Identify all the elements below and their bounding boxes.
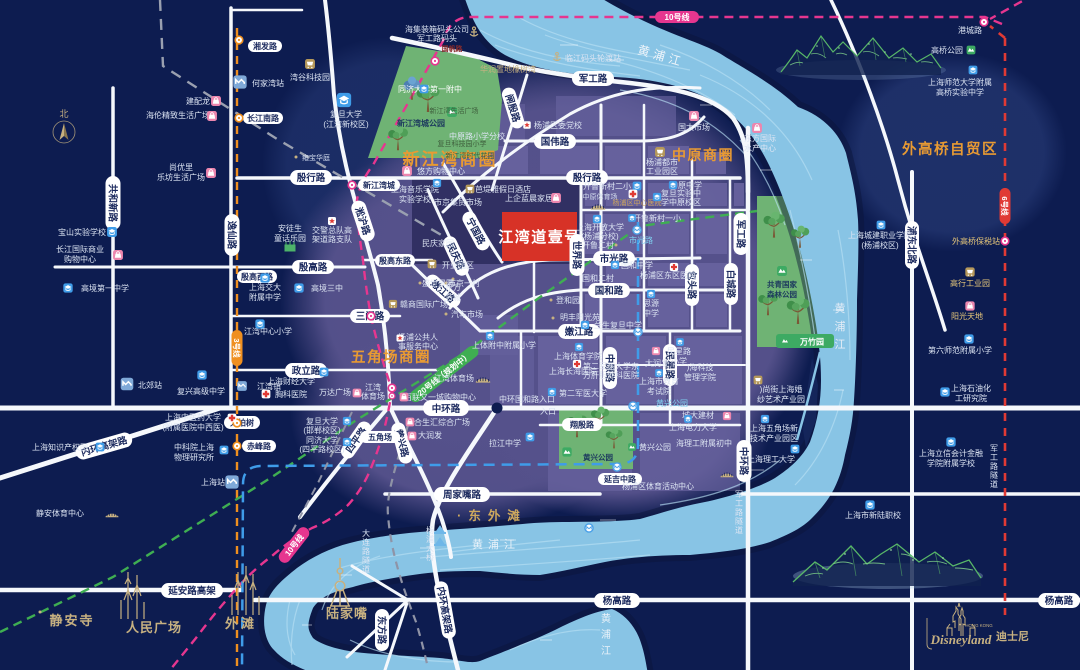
svg-text:上企蓝晨家居: 上企蓝晨家居 bbox=[505, 193, 553, 203]
svg-text:浦: 浦 bbox=[601, 628, 611, 641]
svg-text:政立路: 政立路 bbox=[292, 365, 321, 377]
svg-text:嫩江路: 嫩江路 bbox=[565, 326, 594, 338]
svg-text:黄: 黄 bbox=[601, 612, 611, 625]
svg-text:复兴高级中学: 复兴高级中学 bbox=[177, 386, 225, 396]
svg-text:阳光天地: 阳光天地 bbox=[951, 311, 983, 321]
svg-text:杨浦区体育活动中心: 杨浦区体育活动中心 bbox=[622, 481, 694, 491]
svg-text:江: 江 bbox=[601, 645, 611, 657]
svg-text:浦: 浦 bbox=[426, 534, 434, 544]
svg-text:实验学校: 实验学校 bbox=[399, 194, 431, 204]
svg-text:高境第一中学: 高境第一中学 bbox=[81, 283, 129, 293]
svg-text:外高桥自贸区: 外高桥自贸区 bbox=[902, 140, 998, 158]
svg-text:国和路: 国和路 bbox=[595, 285, 624, 297]
svg-text:浦: 浦 bbox=[835, 320, 846, 333]
svg-text:市光路: 市光路 bbox=[629, 235, 653, 245]
svg-text:殷行路: 殷行路 bbox=[296, 172, 326, 184]
svg-text:上海理工大学: 上海理工大学 bbox=[747, 454, 795, 464]
svg-text:学中原校区: 学中原校区 bbox=[661, 197, 701, 207]
svg-text:上体附中附属小学: 上体附中附属小学 bbox=[472, 340, 536, 350]
svg-text:复旦实验中: 复旦实验中 bbox=[661, 188, 701, 198]
svg-text:(四平路校区): (四平路校区) bbox=[299, 444, 345, 454]
svg-text:物理研究所: 物理研究所 bbox=[174, 452, 214, 462]
svg-text:道: 道 bbox=[990, 479, 998, 489]
svg-text:国和中学: 国和中学 bbox=[621, 260, 653, 270]
svg-text:森林公园: 森林公园 bbox=[767, 289, 797, 299]
svg-text:中环路: 中环路 bbox=[432, 403, 461, 415]
svg-text:合生汇综合广场: 合生汇综合广场 bbox=[414, 417, 470, 427]
svg-text:杨浦都市: 杨浦都市 bbox=[646, 157, 678, 167]
svg-text:工: 工 bbox=[990, 453, 998, 462]
svg-text:中原路小学分校: 中原路小学分校 bbox=[449, 131, 505, 141]
svg-text:军: 军 bbox=[990, 444, 998, 453]
svg-text:路: 路 bbox=[990, 461, 998, 471]
svg-text:中学: 中学 bbox=[643, 308, 659, 318]
svg-text:海集装箱码头公司: 海集装箱码头公司 bbox=[405, 24, 469, 34]
svg-text:登和园: 登和园 bbox=[556, 295, 580, 305]
svg-text:港城路: 港城路 bbox=[958, 25, 982, 35]
svg-text:海伦精致生活广场: 海伦精致生活广场 bbox=[146, 110, 210, 120]
svg-text:路: 路 bbox=[735, 507, 743, 517]
svg-text:学院附属学校: 学院附属学校 bbox=[927, 458, 975, 468]
svg-text:国和二村: 国和二村 bbox=[582, 273, 614, 283]
svg-text:国太市场: 国太市场 bbox=[678, 122, 710, 132]
svg-text:(杨浦校区): (杨浦校区) bbox=[861, 240, 899, 250]
svg-text:工: 工 bbox=[735, 499, 743, 508]
svg-text:杨: 杨 bbox=[426, 525, 434, 535]
svg-text:雍宝华庭: 雍宝华庭 bbox=[302, 153, 330, 162]
svg-text:宝山实验学校: 宝山实验学校 bbox=[58, 227, 106, 237]
svg-text:新江湾城公园: 新江湾城公园 bbox=[397, 118, 445, 128]
svg-text:迪士尼: 迪士尼 bbox=[996, 629, 1029, 643]
svg-text:上海交大: 上海交大 bbox=[249, 282, 281, 292]
svg-text:北郊站: 北郊站 bbox=[138, 380, 162, 390]
svg-text:杨高路: 杨高路 bbox=[1045, 595, 1074, 607]
svg-text:民庆家园: 民庆家园 bbox=[422, 238, 454, 248]
svg-text:逸仙路: 逸仙路 bbox=[226, 221, 238, 250]
svg-text:工研究院: 工研究院 bbox=[955, 393, 987, 403]
svg-text:连: 连 bbox=[362, 537, 370, 547]
svg-text:黄兴公园: 黄兴公园 bbox=[656, 398, 688, 408]
svg-text:杨浦区委党校: 杨浦区委党校 bbox=[534, 120, 582, 130]
svg-text:桥: 桥 bbox=[426, 552, 434, 562]
svg-text:悠方购物中心: 悠方购物中心 bbox=[417, 166, 465, 176]
svg-text:静安寺: 静安寺 bbox=[49, 613, 94, 628]
svg-text:纱艺术产业园: 纱艺术产业园 bbox=[757, 394, 805, 404]
svg-text:10号线: 10号线 bbox=[665, 12, 690, 22]
svg-text:中科院上海: 中科院上海 bbox=[174, 442, 214, 452]
svg-text:周家嘴路: 周家嘴路 bbox=[443, 489, 482, 501]
svg-text:体育场: 体育场 bbox=[361, 391, 385, 401]
svg-text:军工路码头: 军工路码头 bbox=[417, 33, 457, 43]
svg-text:Disneyland: Disneyland bbox=[930, 632, 992, 647]
svg-text:同济大学第一附中: 同济大学第一附中 bbox=[398, 84, 462, 94]
svg-text:江: 江 bbox=[835, 338, 846, 351]
svg-text:国伟路: 国伟路 bbox=[541, 136, 570, 148]
svg-text:第二军医大学东: 第二军医大学东 bbox=[583, 361, 639, 371]
svg-text:复旦大学: 复旦大学 bbox=[330, 109, 362, 119]
svg-text:高境三中: 高境三中 bbox=[311, 283, 343, 293]
svg-text:复旦大学: 复旦大学 bbox=[306, 416, 338, 426]
svg-text:开鲁二村: 开鲁二村 bbox=[582, 240, 614, 250]
svg-text:共青国家: 共青国家 bbox=[767, 279, 797, 289]
svg-text:工业园区: 工业园区 bbox=[646, 166, 678, 176]
svg-text:黄: 黄 bbox=[835, 301, 846, 315]
svg-text:上海电力大学: 上海电力大学 bbox=[669, 422, 717, 432]
svg-text:临江码头轮渡站: 临江码头轮渡站 bbox=[565, 53, 621, 63]
svg-text:建配龙: 建配龙 bbox=[186, 96, 210, 106]
svg-text:盛世景园: 盛世景园 bbox=[422, 278, 454, 288]
svg-text:上海知识产权园: 上海知识产权园 bbox=[32, 442, 88, 452]
svg-text:上海师范大学附属: 上海师范大学附属 bbox=[928, 77, 992, 87]
svg-text:世界路: 世界路 bbox=[571, 241, 583, 270]
svg-text:道: 道 bbox=[362, 564, 370, 574]
svg-text:开鲁新村一小: 开鲁新村一小 bbox=[633, 213, 681, 223]
svg-text:中原商圈: 中原商圈 bbox=[672, 147, 734, 163]
svg-text:翔殷路: 翔殷路 bbox=[569, 420, 595, 430]
svg-text:方肝胆外科医院: 方肝胆外科医院 bbox=[583, 370, 639, 380]
svg-text:殷高东路: 殷高东路 bbox=[378, 256, 412, 266]
svg-text:上海音乐学院: 上海音乐学院 bbox=[391, 184, 439, 194]
svg-text:上海开放大学: 上海开放大学 bbox=[576, 222, 624, 232]
svg-text:上海市新陆职校: 上海市新陆职校 bbox=[845, 510, 901, 520]
svg-text:)海科技: )海科技 bbox=[687, 362, 714, 372]
svg-text:五角场: 五角场 bbox=[368, 432, 392, 442]
svg-text:(杨浦分校): (杨浦分校) bbox=[581, 231, 619, 241]
svg-text:北: 北 bbox=[59, 109, 68, 119]
svg-text:大润发: 大润发 bbox=[645, 358, 669, 368]
svg-text:第二军医大学: 第二军医大学 bbox=[559, 388, 607, 398]
svg-text:上海石油化: 上海石油化 bbox=[951, 383, 991, 393]
svg-text:江湾道壹号: 江湾道壹号 bbox=[498, 228, 581, 246]
svg-text:附属中学: 附属中学 bbox=[249, 292, 281, 302]
svg-text:路: 路 bbox=[362, 546, 370, 556]
svg-text:延安路高架: 延安路高架 bbox=[167, 585, 216, 597]
svg-text:新江湾时代花园: 新江湾时代花园 bbox=[446, 151, 495, 160]
svg-text:兰生复旦中学: 兰生复旦中学 bbox=[594, 320, 642, 330]
svg-text:·东外滩: ·东外滩 bbox=[457, 508, 527, 523]
svg-text:安徒生: 安徒生 bbox=[278, 223, 302, 233]
svg-text:水产中心: 水产中心 bbox=[744, 143, 776, 153]
svg-text:隧: 隧 bbox=[735, 516, 743, 526]
svg-text:芭堤雅假日酒店: 芭堤雅假日酒店 bbox=[475, 184, 531, 194]
svg-text:技术产业园区: 技术产业园区 bbox=[750, 433, 798, 443]
svg-text:人民广场: 人民广场 bbox=[126, 620, 182, 635]
svg-text:海理工附属初中: 海理工附属初中 bbox=[676, 438, 732, 448]
svg-text:江湾体育场: 江湾体育场 bbox=[434, 373, 474, 383]
svg-text:黄兴公园: 黄兴公园 bbox=[583, 452, 613, 462]
svg-text:高桥实验中学: 高桥实验中学 bbox=[936, 87, 984, 97]
svg-text:上海五角场新: 上海五角场新 bbox=[750, 423, 798, 433]
svg-text:东方国际: 东方国际 bbox=[744, 133, 776, 143]
svg-text:考试院: 考试院 bbox=[647, 386, 671, 396]
svg-text:湘发路: 湘发路 bbox=[253, 41, 278, 51]
svg-text:拉江中学: 拉江中学 bbox=[489, 438, 521, 448]
svg-text:高桥公园: 高桥公园 bbox=[931, 45, 963, 55]
svg-text:上海市教育: 上海市教育 bbox=[639, 376, 679, 386]
svg-text:事服务中心: 事服务中心 bbox=[398, 341, 438, 351]
svg-text:黄浦江: 黄浦江 bbox=[472, 537, 520, 551]
svg-text:赤峰路: 赤峰路 bbox=[247, 441, 272, 451]
svg-text:长江南路: 长江南路 bbox=[247, 113, 280, 123]
svg-text:大: 大 bbox=[426, 543, 434, 553]
svg-text:东方路: 东方路 bbox=[376, 616, 388, 645]
svg-text:军工路: 军工路 bbox=[579, 73, 608, 85]
svg-text:民星路: 民星路 bbox=[667, 346, 691, 356]
svg-text:殷高路: 殷高路 bbox=[298, 262, 328, 274]
svg-text:江湾: 江湾 bbox=[365, 382, 381, 392]
svg-text:购物中心: 购物中心 bbox=[64, 254, 96, 264]
svg-text:(邯郸校区): (邯郸校区) bbox=[303, 425, 341, 435]
svg-text:高行工业园: 高行工业园 bbox=[950, 278, 990, 288]
svg-text:杨浦公共人: 杨浦公共人 bbox=[398, 332, 438, 342]
svg-text:江湾中心小学: 江湾中心小学 bbox=[244, 326, 292, 336]
svg-text:上海立信会计金融: 上海立信会计金融 bbox=[919, 448, 983, 458]
svg-text:白城路: 白城路 bbox=[725, 270, 737, 299]
svg-text:华润置地橡树湾: 华润置地橡树湾 bbox=[480, 64, 536, 74]
svg-text:市京集贸市场: 市京集贸市场 bbox=[434, 197, 482, 207]
svg-text:长江国际商业: 长江国际商业 bbox=[56, 244, 104, 254]
svg-text:杨高路: 杨高路 bbox=[603, 595, 632, 607]
svg-text:开鲁新村二小: 开鲁新村二小 bbox=[583, 181, 631, 191]
svg-text:尚优里: 尚优里 bbox=[169, 162, 193, 172]
svg-text:军: 军 bbox=[735, 490, 743, 499]
svg-text:静安体育中心: 静安体育中心 bbox=[36, 508, 84, 518]
svg-text:新江湾生活广场: 新江湾生活广场 bbox=[430, 106, 479, 115]
svg-text:中环国和路入口: 中环国和路入口 bbox=[499, 394, 555, 404]
svg-text:外高桥保税站: 外高桥保税站 bbox=[952, 236, 1000, 246]
svg-text:开业园区: 开业园区 bbox=[442, 260, 474, 270]
svg-text:陆家嘴: 陆家嘴 bbox=[326, 606, 368, 621]
svg-text:HONG KONG: HONG KONG bbox=[965, 623, 993, 628]
svg-text:军工路: 军工路 bbox=[735, 220, 747, 249]
svg-text:道: 道 bbox=[735, 525, 743, 535]
svg-text:万达广场: 万达广场 bbox=[319, 387, 351, 397]
svg-text:(江湾新校区): (江湾新校区) bbox=[323, 119, 369, 129]
svg-text:隧: 隧 bbox=[362, 555, 370, 565]
svg-text:上海中医药大学: 上海中医药大学 bbox=[165, 412, 221, 422]
svg-text:)尚街上海婚: )尚街上海婚 bbox=[760, 384, 803, 394]
svg-text:上海站: 上海站 bbox=[201, 477, 225, 487]
svg-text:大润发: 大润发 bbox=[418, 430, 442, 440]
svg-text:3号线: 3号线 bbox=[232, 338, 242, 358]
svg-text:架道路支队: 架道路支队 bbox=[312, 234, 352, 244]
svg-text:大: 大 bbox=[362, 528, 370, 538]
svg-text:共和新路: 共和新路 bbox=[107, 184, 119, 223]
svg-text:何家湾站: 何家湾站 bbox=[252, 78, 284, 88]
svg-text:交警总队高: 交警总队高 bbox=[312, 225, 352, 235]
svg-text:杨浦区东区医院: 杨浦区东区医院 bbox=[640, 270, 696, 280]
svg-text:国帆路: 国帆路 bbox=[442, 44, 464, 53]
svg-text:管理学院: 管理学院 bbox=[684, 372, 716, 382]
svg-text:入口: 入口 bbox=[540, 407, 556, 416]
svg-text:第六师范附属小学: 第六师范附属小学 bbox=[928, 345, 992, 355]
svg-text:汽车市场: 汽车市场 bbox=[451, 309, 483, 319]
svg-text:湾谷科技园: 湾谷科技园 bbox=[290, 72, 330, 82]
svg-text:万竹园: 万竹园 bbox=[799, 337, 824, 347]
svg-text:上海体育学院: 上海体育学院 bbox=[554, 351, 602, 361]
svg-text:隧: 隧 bbox=[990, 470, 998, 480]
svg-text:赣商国际广场: 赣商国际广场 bbox=[400, 299, 448, 309]
svg-text:小学: 小学 bbox=[671, 356, 687, 366]
svg-text:上海财经大学: 上海财经大学 bbox=[267, 376, 315, 386]
svg-text:(附属医院中西医): (附属医院中西医) bbox=[162, 422, 224, 432]
svg-text:上海城建职业学院: 上海城建职业学院 bbox=[848, 230, 912, 240]
svg-text:外滩: 外滩 bbox=[224, 616, 257, 631]
svg-text:百联又一城购物中心: 百联又一城购物中心 bbox=[404, 392, 476, 402]
svg-text:同济大学: 同济大学 bbox=[306, 435, 338, 445]
svg-text:思源: 思源 bbox=[643, 299, 659, 308]
svg-text:黄兴公园: 黄兴公园 bbox=[639, 442, 671, 452]
svg-text:胸科医院: 胸科医院 bbox=[275, 389, 307, 399]
svg-text:6号线: 6号线 bbox=[1000, 196, 1010, 216]
svg-text:乐坊生活广场: 乐坊生活广场 bbox=[157, 172, 205, 182]
